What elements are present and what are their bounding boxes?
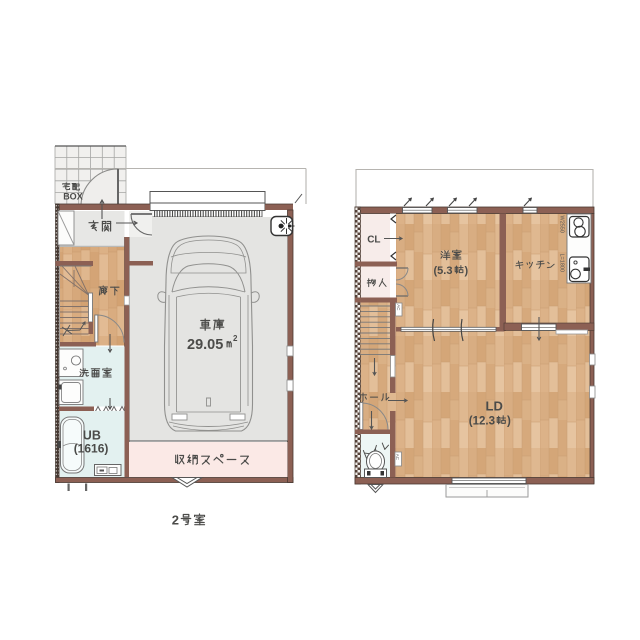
svg-text:(12.3: (12.3 bbox=[469, 416, 495, 428]
svg-text:(1616): (1616) bbox=[74, 441, 109, 455]
svg-text:(5.3: (5.3 bbox=[434, 265, 453, 277]
svg-text:2: 2 bbox=[172, 513, 179, 528]
svg-text:AC: AC bbox=[395, 454, 400, 461]
svg-text:LD: LD bbox=[486, 399, 503, 414]
svg-text:CL: CL bbox=[367, 235, 380, 246]
svg-text:29.05: 29.05 bbox=[187, 337, 223, 353]
svg-text:): ) bbox=[507, 416, 511, 428]
svg-text:BOX: BOX bbox=[63, 192, 83, 202]
svg-text:W2550: W2550 bbox=[559, 216, 565, 233]
svg-text:2: 2 bbox=[233, 334, 238, 343]
svg-text:L=1800: L=1800 bbox=[559, 254, 565, 273]
svg-text:): ) bbox=[465, 265, 469, 277]
svg-text:AC: AC bbox=[396, 304, 401, 311]
